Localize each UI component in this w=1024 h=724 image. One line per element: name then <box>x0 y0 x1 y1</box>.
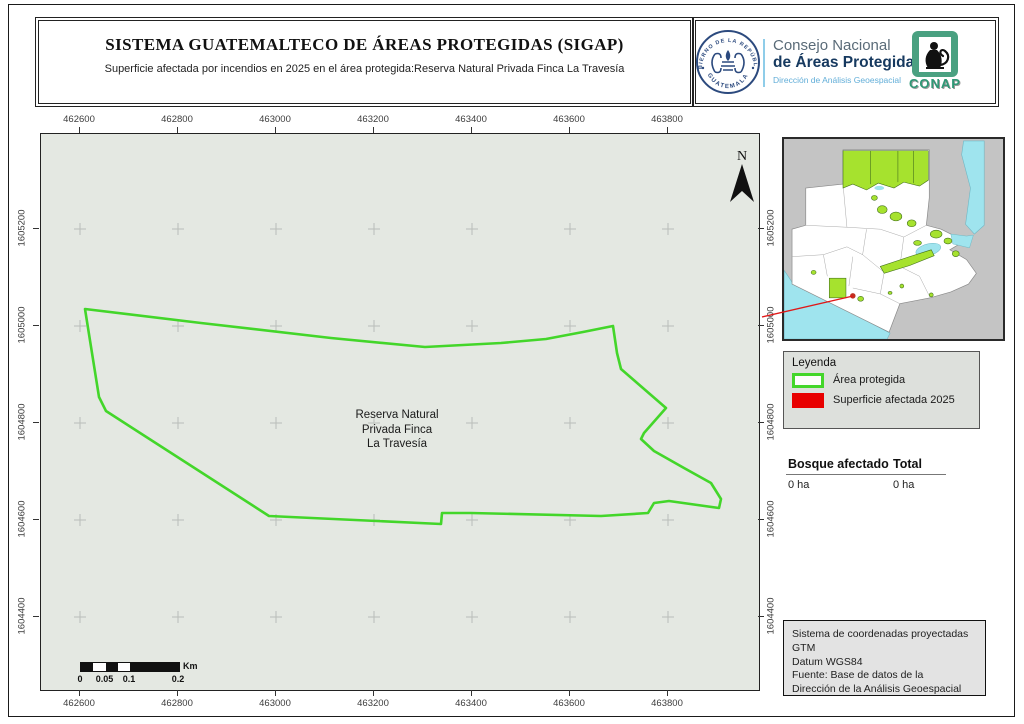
y-axis-label-right: 1605000 <box>766 307 777 344</box>
x-axis-tick-bottom <box>373 690 374 696</box>
logo-divider <box>763 39 765 87</box>
legend-swatch-fill <box>792 393 824 408</box>
x-axis-label-top: 463200 <box>357 114 389 125</box>
legend: Leyenda Área protegidaSuperficie afectad… <box>783 351 980 429</box>
conap-logo-icon: CONAP CONAP <box>909 29 965 95</box>
page-title: SISTEMA GUATEMALTECO DE ÁREAS PROTEGIDAS… <box>39 35 690 55</box>
x-axis-label-bottom: 462600 <box>63 698 95 709</box>
x-axis-label-top: 463600 <box>553 114 585 125</box>
y-axis-tick-left <box>33 519 39 520</box>
credits-line: Fuente: Base de datos de la <box>792 669 977 683</box>
inset-target-dot <box>850 293 855 298</box>
y-axis-tick-left <box>33 325 39 326</box>
main-map: N Reserva Natural Privada Finca La Trave… <box>40 133 760 691</box>
scale-bar-label: 0.2 <box>172 674 185 684</box>
map-layout-page: SISTEMA GUATEMALTECO DE ÁREAS PROTEGIDAS… <box>0 0 1024 724</box>
x-axis-tick-bottom <box>667 690 668 696</box>
x-axis-label-bottom: 462800 <box>161 698 193 709</box>
logo-box: GOBIERNO DE LA REPÚBLICA GUATEMALA Conse… <box>692 17 999 107</box>
legend-swatch-outline <box>792 373 824 388</box>
inset-map-box <box>782 137 1005 341</box>
scale-bar-unit: Km <box>183 661 198 671</box>
conap-logo-text: CONAP <box>909 76 961 91</box>
y-axis-tick-right <box>758 422 764 423</box>
y-axis-tick-right <box>758 228 764 229</box>
credits-line: Dirección de la Análisis Geoespacial <box>792 683 977 697</box>
scale-bar-label: 0.1 <box>123 674 136 684</box>
org-name-line2: de Áreas Protegidas <box>773 54 923 72</box>
x-axis-label-bottom: 463000 <box>259 698 291 709</box>
legend-item-label: Área protegida <box>833 374 905 386</box>
org-name-line3: Dirección de Análisis Geoespacial <box>773 75 901 85</box>
x-axis-tick-top <box>667 127 668 133</box>
x-axis-tick-top <box>177 127 178 133</box>
y-axis-tick-right <box>758 616 764 617</box>
x-axis-label-bottom: 463200 <box>357 698 389 709</box>
title-box-inner-border: SISTEMA GUATEMALTECO DE ÁREAS PROTEGIDAS… <box>38 20 691 104</box>
y-axis-tick-left <box>33 228 39 229</box>
y-axis-tick-left <box>33 616 39 617</box>
scale-bar-label: 0 <box>77 674 82 684</box>
credits-line: Sistema de coordenadas proyectadas <box>792 628 977 642</box>
x-axis-label-bottom: 463800 <box>651 698 683 709</box>
org-name-line1: Consejo Nacional <box>773 37 891 54</box>
scale-bar: Km 00.050.10.2 <box>78 658 218 688</box>
scale-bar-segments <box>80 662 180 672</box>
x-axis-label-top: 463400 <box>455 114 487 125</box>
y-axis-tick-right <box>758 519 764 520</box>
y-axis-label-right: 1604800 <box>766 404 777 441</box>
y-axis-label-right: 1604400 <box>766 598 777 635</box>
stats-col2-value: 0 ha <box>893 479 914 491</box>
title-box: SISTEMA GUATEMALTECO DE ÁREAS PROTEGIDAS… <box>35 17 694 107</box>
x-axis-tick-bottom <box>177 690 178 696</box>
x-axis-tick-bottom <box>79 690 80 696</box>
x-axis-label-top: 462600 <box>63 114 95 125</box>
x-axis-tick-bottom <box>569 690 570 696</box>
y-axis-tick-right <box>758 325 764 326</box>
x-axis-tick-top <box>373 127 374 133</box>
stats-col1-value: 0 ha <box>788 479 809 491</box>
legend-item: Área protegida <box>792 372 979 388</box>
y-axis-tick-left <box>33 422 39 423</box>
protected-area-label: Reserva Natural Privada Finca La Travesí… <box>317 408 477 452</box>
x-axis-label-top: 462800 <box>161 114 193 125</box>
y-axis-label-right: 1604600 <box>766 501 777 538</box>
credits-box: Sistema de coordenadas proyectadasGTMDat… <box>783 620 986 696</box>
scale-bar-label: 0.05 <box>96 674 114 684</box>
x-axis-label-bottom: 463600 <box>553 698 585 709</box>
x-axis-label-bottom: 463400 <box>455 698 487 709</box>
x-axis-label-top: 463000 <box>259 114 291 125</box>
y-axis-label-left: 1605200 <box>17 210 28 247</box>
x-axis-tick-top <box>275 127 276 133</box>
stats-col2-header: Total <box>893 457 922 471</box>
x-axis-tick-top <box>569 127 570 133</box>
credits-line: Datum WGS84 <box>792 656 977 670</box>
inset-map-guatemala <box>784 139 1003 339</box>
government-seal-icon: GOBIERNO DE LA REPÚBLICA GUATEMALA <box>695 28 761 96</box>
y-axis-label-left: 1605000 <box>17 307 28 344</box>
legend-item-label: Superficie afectada 2025 <box>833 394 955 406</box>
x-axis-tick-top <box>471 127 472 133</box>
y-axis-label-left: 1604400 <box>17 598 28 635</box>
stats-col1-header: Bosque afectado <box>788 457 889 471</box>
y-axis-label-left: 1604800 <box>17 404 28 441</box>
credits-line: GTM <box>792 642 977 656</box>
legend-item: Superficie afectada 2025 <box>792 392 979 408</box>
page-subtitle: Superficie afectada por incendios en 202… <box>92 62 637 76</box>
legend-title: Leyenda <box>784 352 979 372</box>
y-axis-label-right: 1605200 <box>766 210 777 247</box>
x-axis-tick-top <box>79 127 80 133</box>
north-arrow-icon: N <box>730 149 754 202</box>
x-axis-label-top: 463800 <box>651 114 683 125</box>
y-axis-label-left: 1604600 <box>17 501 28 538</box>
x-axis-tick-bottom <box>471 690 472 696</box>
stats-table: Bosque afectado Total 0 ha 0 ha <box>786 457 946 495</box>
svg-text:N: N <box>737 149 747 164</box>
x-axis-tick-bottom <box>275 690 276 696</box>
